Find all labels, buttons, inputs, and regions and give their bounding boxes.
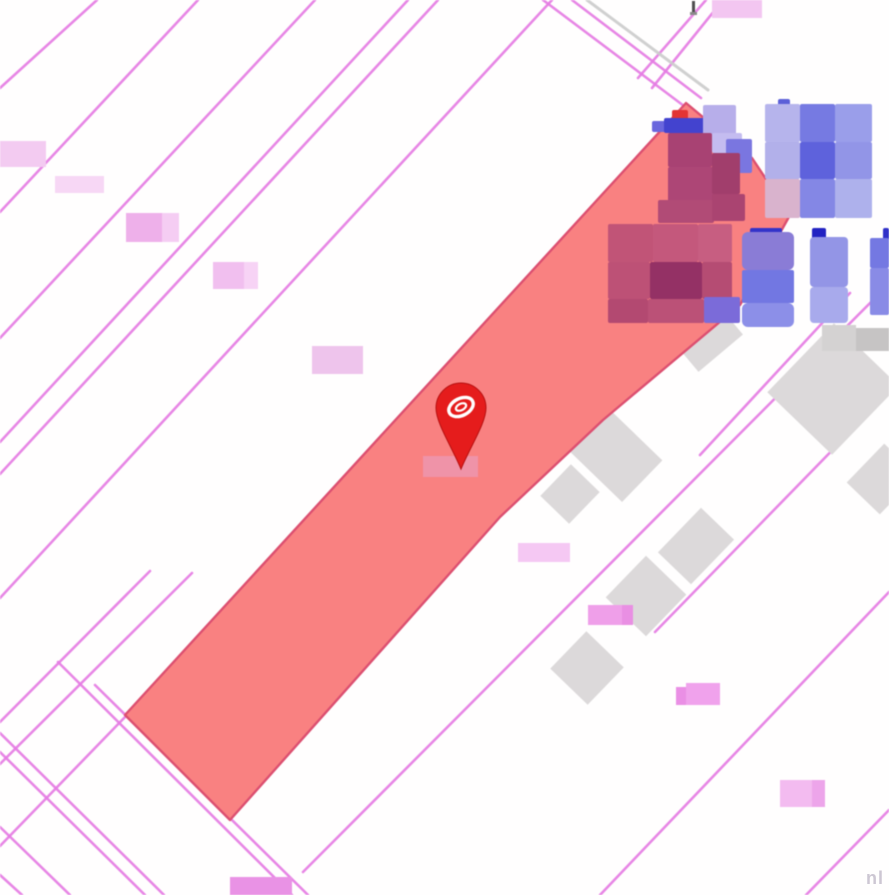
blurred-building <box>742 303 794 327</box>
parcel-boundary-line <box>0 0 438 474</box>
building-footprint <box>658 508 734 585</box>
blurred-building <box>702 262 732 299</box>
parcel-boundary-line <box>0 733 164 895</box>
blurred-building <box>664 118 704 133</box>
blurred-building <box>668 133 712 167</box>
building-footprint <box>540 464 599 523</box>
blurred-building <box>765 179 800 218</box>
map-canvas[interactable] <box>0 0 889 895</box>
parcel-boundary-line <box>0 875 22 895</box>
blurred-map-label <box>676 687 686 705</box>
blurred-building <box>800 179 835 218</box>
blurred-map-label <box>518 543 570 562</box>
parcel-boundary-line <box>587 0 708 90</box>
blurred-building <box>765 142 800 179</box>
map-viewport[interactable]: nl <box>0 0 889 895</box>
blurred-building <box>742 232 794 270</box>
blurred-building <box>653 224 698 262</box>
watermark: nl <box>866 868 889 889</box>
parcel-boundary-line <box>0 716 126 846</box>
blurred-building <box>712 194 745 221</box>
building-footprint <box>847 444 889 515</box>
blurred-building <box>608 299 648 323</box>
blurred-map-label <box>712 0 762 18</box>
blurred-building <box>608 224 653 262</box>
blurred-building <box>800 104 835 142</box>
parcel-boundary-line <box>0 571 150 722</box>
blurred-building <box>608 262 650 299</box>
blurred-building <box>800 142 835 179</box>
parcel-boundary-line <box>0 0 97 88</box>
top-edge-glyph <box>690 12 697 15</box>
blurred-building <box>648 299 704 323</box>
blurred-building <box>698 224 732 262</box>
top-edge-glyph <box>692 1 695 13</box>
parcel-boundary-line <box>543 0 684 106</box>
blurred-map-label <box>213 262 244 289</box>
blurred-map-label <box>0 141 46 167</box>
parcel-boundary-line <box>600 592 889 895</box>
blurred-building <box>703 105 736 135</box>
parcel-boundary-line <box>638 0 706 78</box>
parcel-boundary-line <box>0 0 315 338</box>
blurred-map-label <box>312 346 363 374</box>
blurred-building <box>835 179 872 218</box>
blurred-building <box>810 287 848 323</box>
blurred-building <box>652 121 666 132</box>
blurred-building <box>658 200 714 223</box>
blurred-map-label <box>812 780 825 807</box>
blurred-map-label <box>230 877 292 895</box>
blurred-building <box>835 142 872 179</box>
blurred-building <box>870 238 889 268</box>
blurred-map-label <box>856 328 889 351</box>
blurred-map-label <box>55 176 104 193</box>
blurred-building <box>650 262 702 299</box>
blurred-map-label <box>423 456 478 477</box>
blurred-building <box>742 270 794 303</box>
blurred-map-label <box>822 325 856 351</box>
blurred-map-label <box>244 262 258 289</box>
blurred-map-label <box>588 605 622 625</box>
blurred-building <box>765 104 800 142</box>
blurred-building <box>668 167 714 202</box>
blurred-map-label <box>780 780 812 807</box>
parcel-boundary-line <box>572 0 701 98</box>
building-footprint <box>550 631 624 705</box>
blurred-building <box>810 237 848 287</box>
blurred-map-label <box>162 213 179 242</box>
blurred-building <box>835 104 872 142</box>
blurred-map-label <box>622 605 633 625</box>
blurred-building <box>870 268 889 315</box>
blurred-building <box>704 297 740 323</box>
blurred-map-label <box>126 213 162 242</box>
blurred-building <box>712 153 740 194</box>
blurred-map-label <box>686 683 720 705</box>
